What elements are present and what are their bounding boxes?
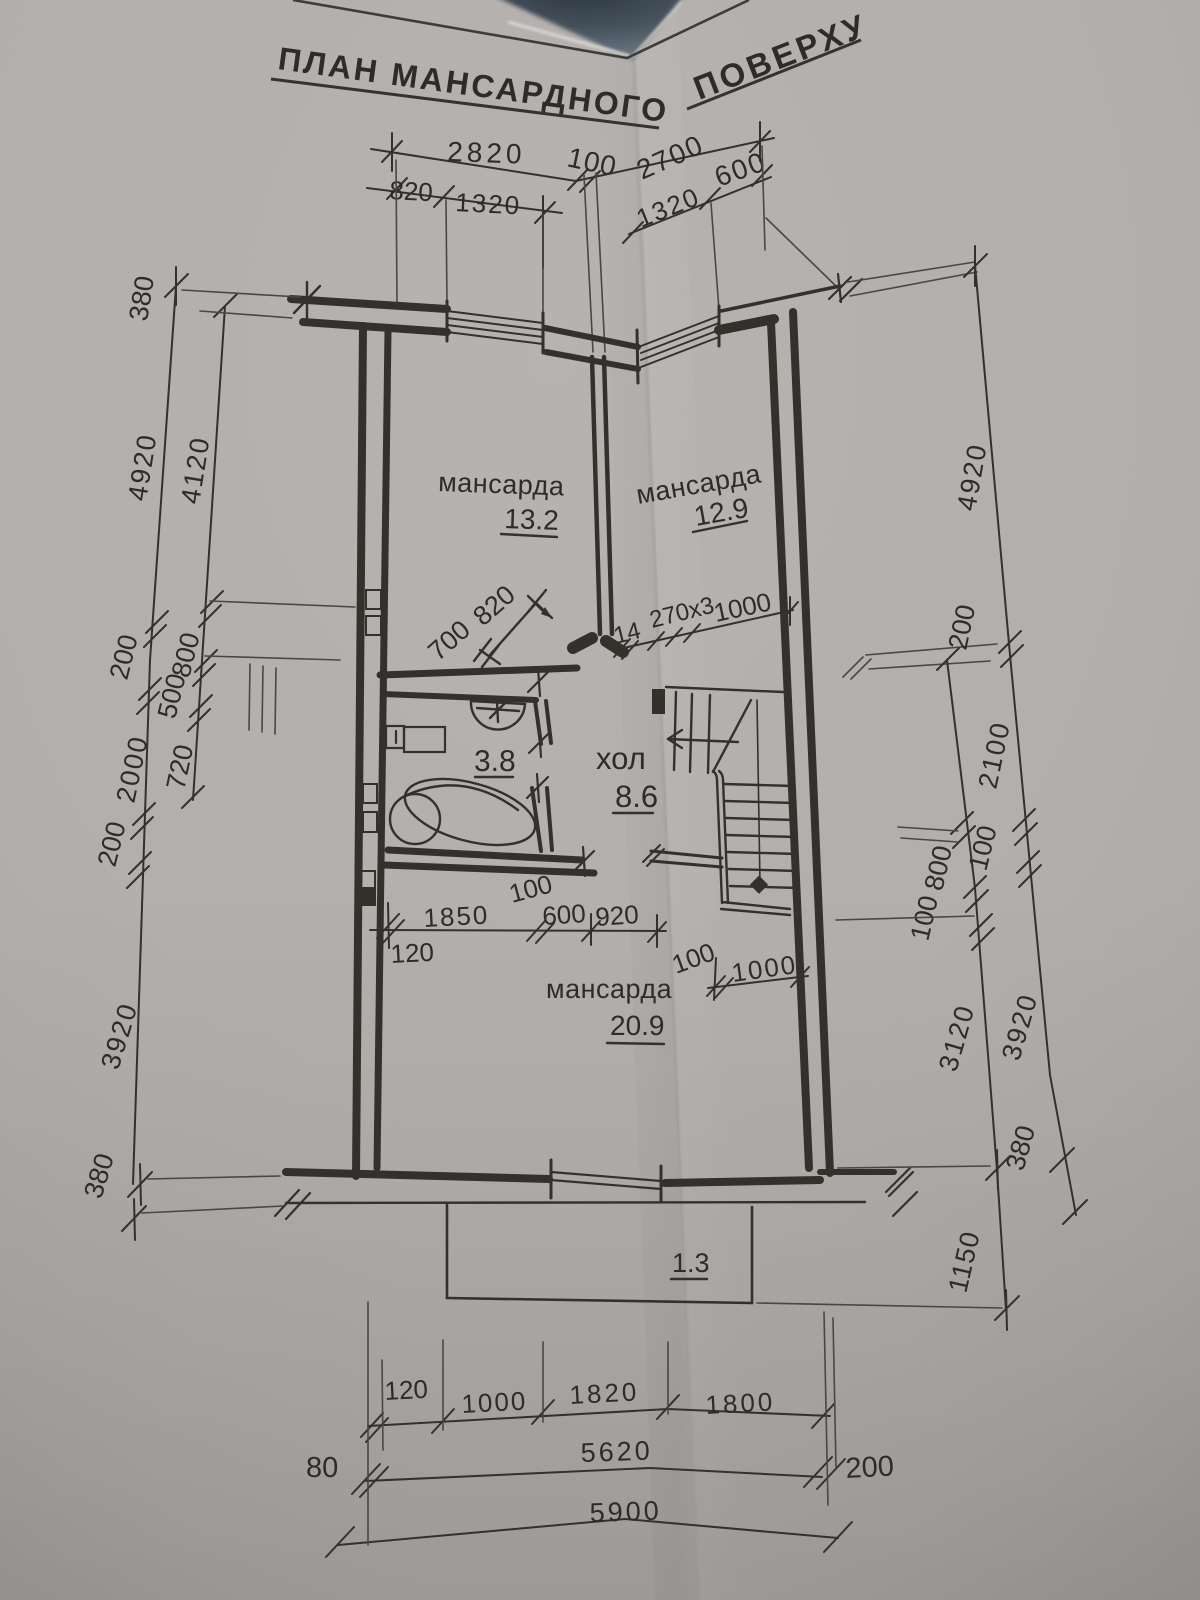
- svg-text:13.2: 13.2: [504, 503, 560, 536]
- svg-text:3.8: 3.8: [474, 745, 516, 778]
- svg-text:200: 200: [845, 1451, 895, 1485]
- svg-text:80: 80: [306, 1452, 338, 1484]
- svg-text:хол: хол: [596, 741, 646, 776]
- svg-text:1.3: 1.3: [672, 1248, 710, 1278]
- svg-text:мансарда: мансарда: [438, 467, 566, 501]
- svg-text:5900: 5900: [589, 1495, 662, 1527]
- svg-text:8.6: 8.6: [615, 779, 658, 814]
- svg-text:мансарда: мансарда: [546, 974, 673, 1004]
- svg-text:2820: 2820: [447, 136, 526, 170]
- svg-text:20.9: 20.9: [610, 1010, 665, 1041]
- svg-text:600: 600: [541, 898, 586, 931]
- svg-text:920: 920: [594, 899, 639, 932]
- svg-text:5620: 5620: [580, 1435, 653, 1467]
- svg-text:1800: 1800: [705, 1386, 776, 1420]
- svg-text:120: 120: [384, 1374, 429, 1406]
- svg-text:120: 120: [390, 937, 435, 969]
- svg-text:1000: 1000: [461, 1386, 528, 1419]
- svg-text:1820: 1820: [569, 1376, 640, 1410]
- svg-text:1320: 1320: [455, 187, 522, 220]
- svg-text:1850: 1850: [423, 900, 490, 933]
